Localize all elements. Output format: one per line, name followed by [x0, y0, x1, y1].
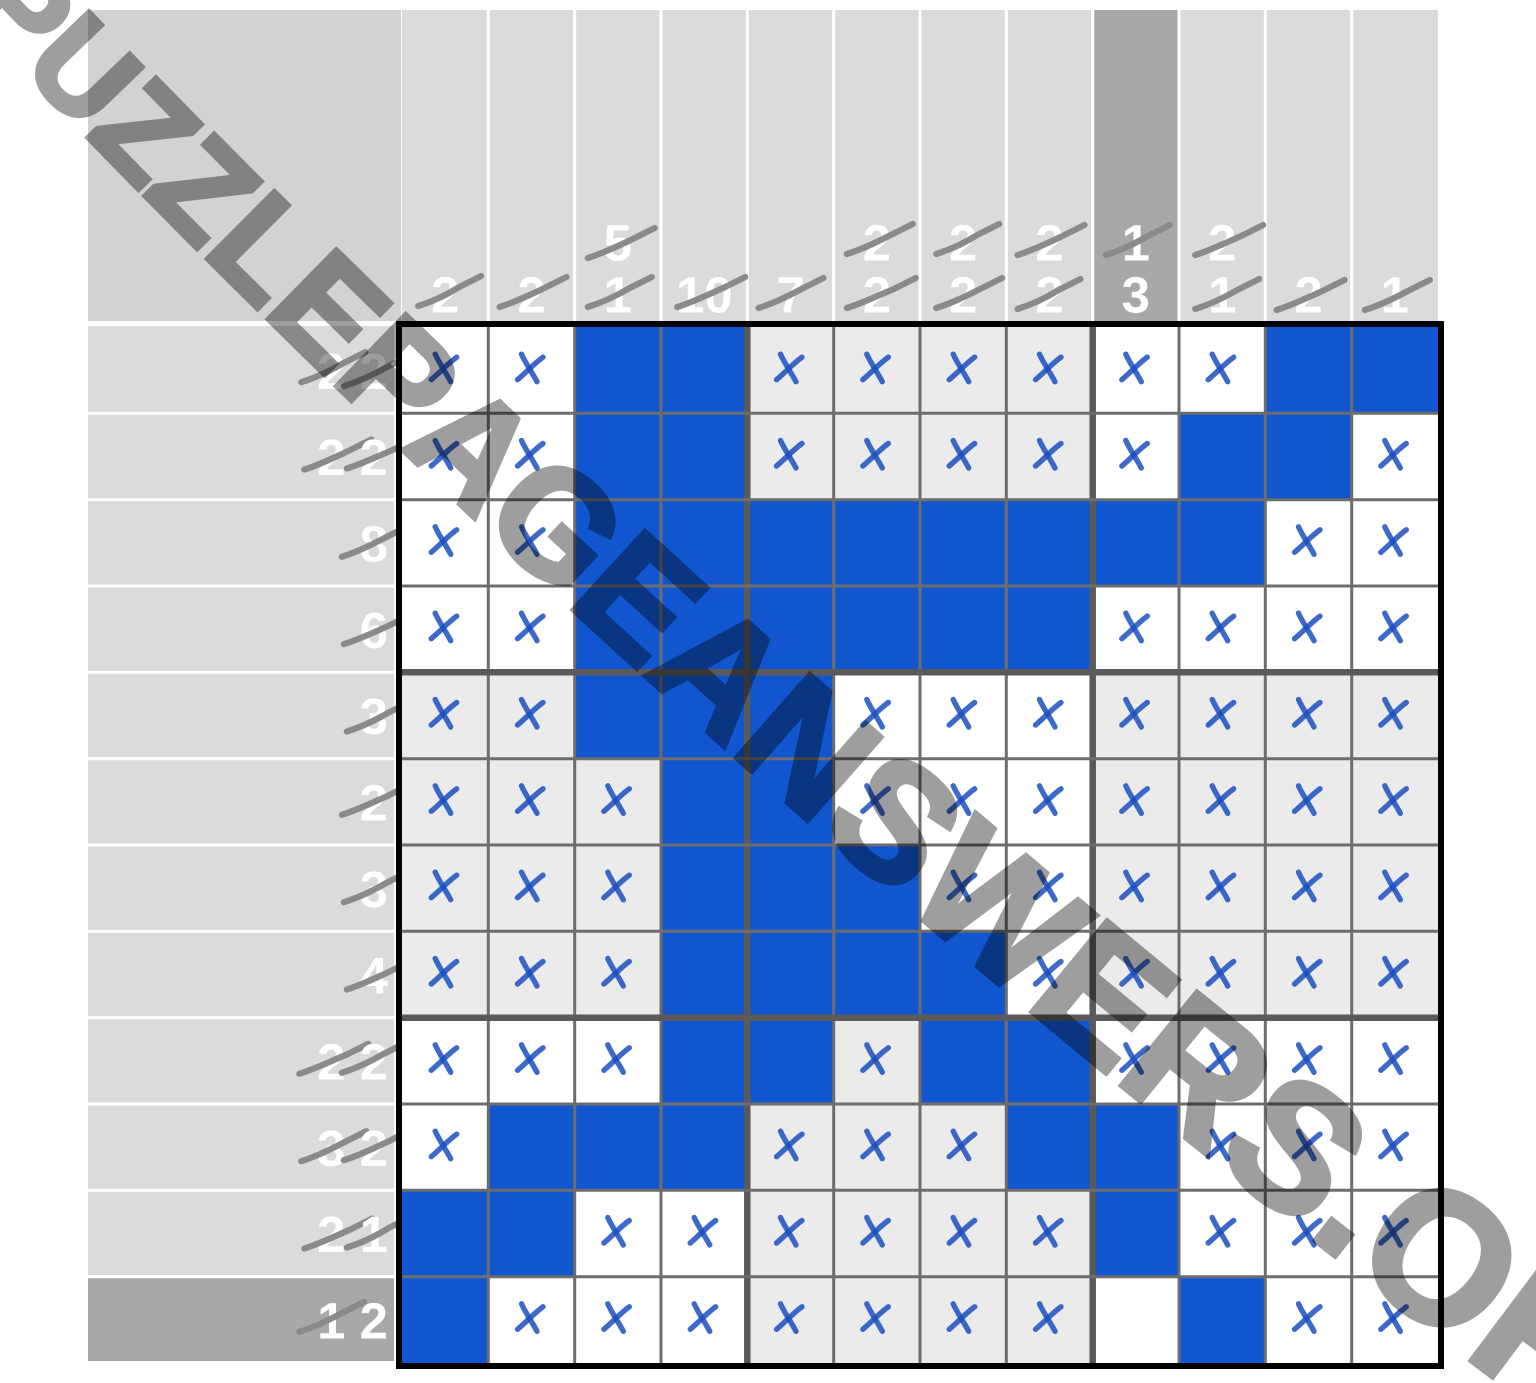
svg-text:3: 3	[1122, 267, 1150, 324]
svg-text:2: 2	[360, 1292, 388, 1349]
